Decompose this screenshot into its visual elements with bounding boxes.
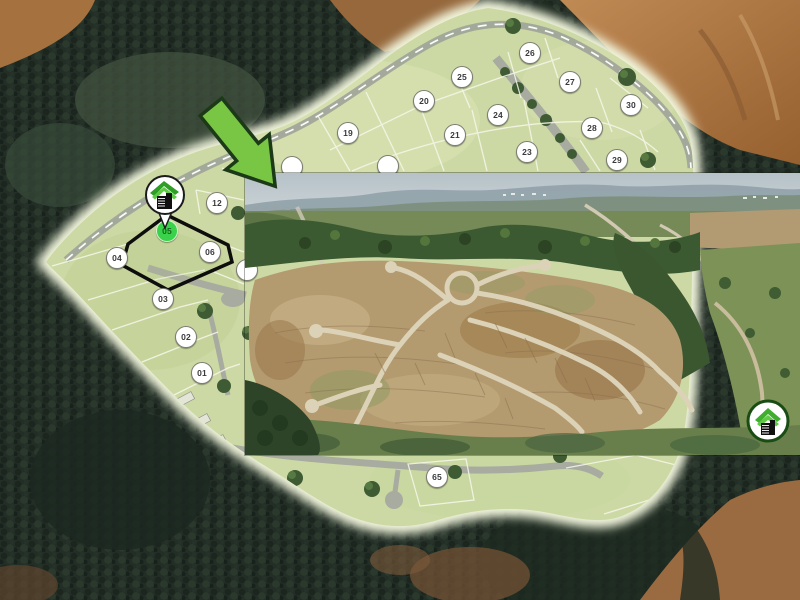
listing-image: 01020304050612192021232425262728293065 bbox=[0, 0, 800, 600]
developer-logo-pin-icon bbox=[0, 0, 800, 600]
